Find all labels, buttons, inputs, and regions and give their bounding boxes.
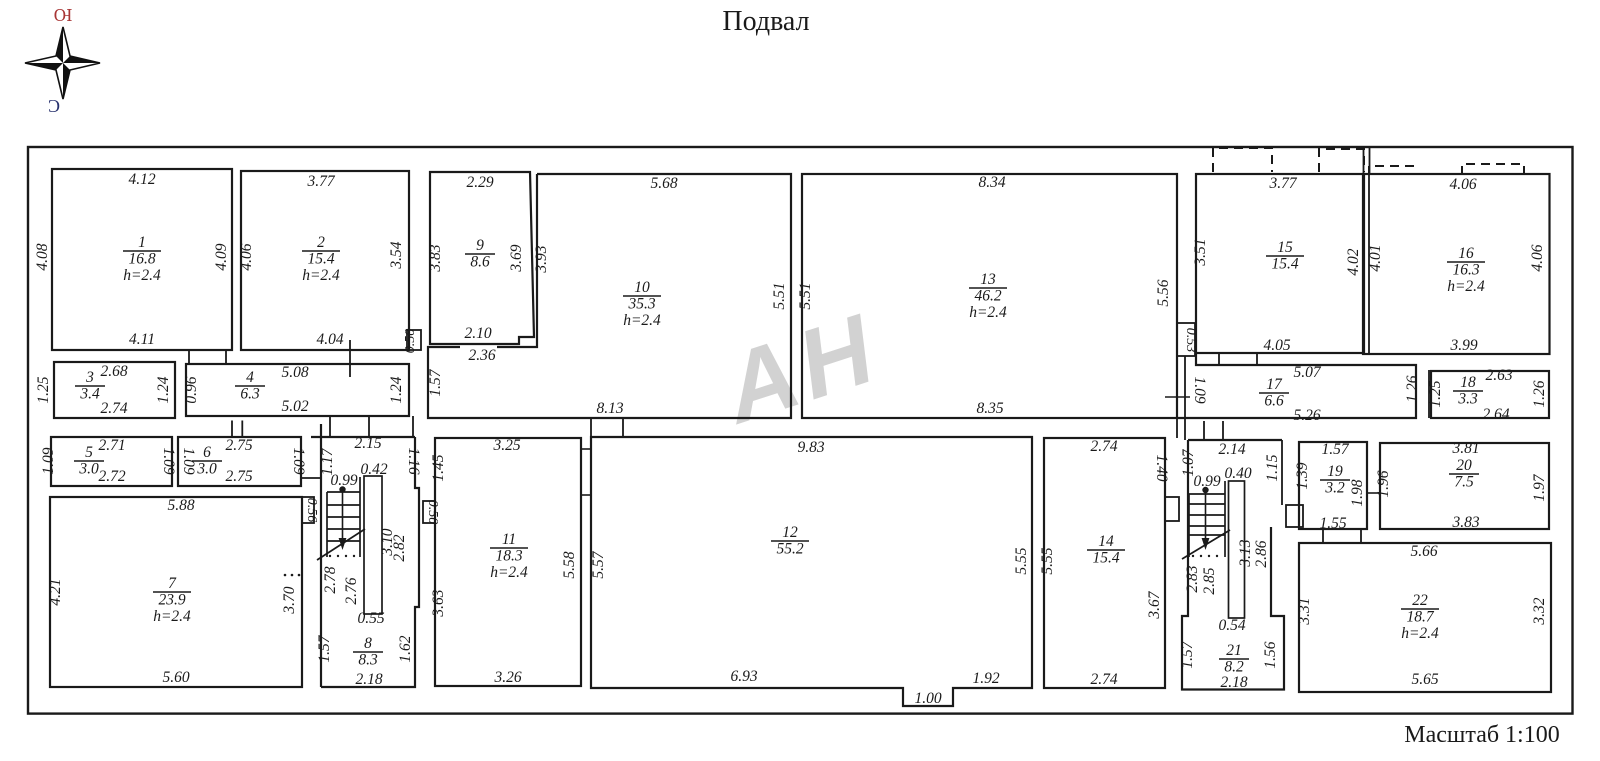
svg-text:2.83: 2.83 (1184, 565, 1201, 592)
svg-text:3.70: 3.70 (281, 586, 298, 614)
svg-text:3.77: 3.77 (306, 173, 335, 190)
svg-text:12: 12 (782, 524, 798, 541)
svg-text:16.8: 16.8 (128, 251, 155, 268)
svg-text:3.26: 3.26 (493, 669, 521, 686)
svg-text:1.16: 1.16 (405, 447, 422, 474)
svg-text:3.77: 3.77 (1268, 175, 1297, 192)
svg-text:2.86: 2.86 (1253, 540, 1270, 567)
svg-text:2.74: 2.74 (100, 400, 127, 417)
svg-text:2.10: 2.10 (464, 325, 491, 342)
svg-text:3.69: 3.69 (508, 244, 525, 272)
svg-text:1.55: 1.55 (1319, 515, 1346, 532)
svg-text:0.99: 0.99 (1193, 473, 1220, 490)
svg-text:1.57: 1.57 (1321, 441, 1349, 458)
svg-text:1.09: 1.09 (160, 447, 177, 474)
svg-text:55.2: 55.2 (776, 541, 803, 558)
svg-text:5.65: 5.65 (1411, 671, 1438, 688)
svg-text:2.71: 2.71 (98, 437, 125, 454)
svg-text:4.01: 4.01 (1367, 244, 1384, 271)
svg-text:18: 18 (1460, 374, 1476, 391)
svg-text:3.83: 3.83 (427, 244, 444, 272)
svg-text:5.66: 5.66 (1410, 543, 1437, 560)
svg-text:5: 5 (85, 444, 93, 461)
svg-text:4.06: 4.06 (1449, 176, 1476, 193)
svg-text:4.11: 4.11 (129, 331, 155, 348)
svg-text:5.60: 5.60 (162, 669, 189, 686)
svg-text:1.57: 1.57 (1179, 640, 1196, 668)
svg-text:2.29: 2.29 (466, 174, 493, 191)
svg-text:8.6: 8.6 (470, 254, 490, 271)
svg-text:10: 10 (634, 279, 650, 296)
svg-text:4.02: 4.02 (1345, 248, 1362, 275)
svg-text:35.3: 35.3 (627, 296, 655, 313)
svg-text:8.13: 8.13 (596, 400, 623, 417)
svg-text:9: 9 (476, 237, 484, 254)
svg-text:8.3: 8.3 (358, 652, 378, 669)
svg-text:3.2: 3.2 (1324, 480, 1345, 497)
svg-text:h=2.4: h=2.4 (1401, 625, 1439, 642)
svg-text:3.83: 3.83 (1451, 514, 1479, 531)
svg-text:15: 15 (1277, 239, 1293, 256)
svg-text:1.57: 1.57 (427, 368, 444, 396)
svg-text:6.6: 6.6 (1264, 393, 1284, 410)
svg-text:14: 14 (1098, 533, 1114, 550)
svg-text:3.32: 3.32 (1531, 597, 1548, 625)
svg-text:0.42: 0.42 (360, 461, 387, 478)
svg-text:18.7: 18.7 (1406, 609, 1434, 626)
svg-text:16: 16 (1458, 245, 1474, 262)
svg-text:18.3: 18.3 (495, 548, 522, 565)
svg-text:2: 2 (317, 234, 325, 251)
svg-text:1.24: 1.24 (388, 376, 405, 403)
svg-text:4.12: 4.12 (128, 171, 155, 188)
svg-text:2.76: 2.76 (343, 577, 360, 604)
svg-text:2.63: 2.63 (1485, 367, 1512, 384)
svg-text:h=2.4: h=2.4 (969, 304, 1007, 321)
svg-text:3.0: 3.0 (78, 461, 99, 478)
svg-text:5.08: 5.08 (281, 364, 308, 381)
svg-text:8.35: 8.35 (976, 400, 1003, 417)
svg-text:0.56: 0.56 (304, 498, 319, 523)
svg-text:5.02: 5.02 (281, 398, 308, 415)
svg-text:7.5: 7.5 (1454, 474, 1474, 491)
svg-text:8.2: 8.2 (1224, 659, 1244, 676)
svg-text:6.3: 6.3 (240, 386, 260, 403)
svg-text:1.97: 1.97 (1531, 473, 1548, 501)
svg-text:h=2.4: h=2.4 (302, 267, 340, 284)
svg-text:6: 6 (203, 444, 211, 461)
svg-text:h=2.4: h=2.4 (1447, 278, 1485, 295)
svg-text:1.39: 1.39 (1294, 462, 1311, 489)
svg-text:5.58: 5.58 (561, 551, 578, 578)
svg-text:15.4: 15.4 (307, 251, 334, 268)
svg-text:0.96: 0.96 (183, 376, 200, 403)
svg-text:9.83: 9.83 (797, 439, 824, 456)
svg-text:1.25: 1.25 (35, 376, 52, 403)
svg-text:2.18: 2.18 (1220, 674, 1247, 691)
svg-text:1.56: 1.56 (1262, 641, 1279, 668)
svg-text:1.96: 1.96 (1375, 470, 1392, 497)
svg-text:13: 13 (980, 271, 996, 288)
svg-text:1: 1 (138, 234, 146, 251)
svg-text:1.26: 1.26 (1404, 375, 1421, 402)
svg-text:46.2: 46.2 (974, 288, 1001, 305)
svg-text:0.54: 0.54 (1218, 617, 1245, 634)
svg-text:2.72: 2.72 (98, 468, 125, 485)
svg-text:2.64: 2.64 (1482, 406, 1509, 423)
svg-text:4.05: 4.05 (1263, 337, 1290, 354)
svg-text:3.25: 3.25 (492, 437, 520, 454)
svg-text:5.56: 5.56 (1155, 279, 1172, 306)
svg-text:19: 19 (1327, 463, 1343, 480)
svg-text:4.21: 4.21 (47, 578, 64, 605)
svg-text:5.55: 5.55 (1039, 547, 1056, 574)
svg-text:4.09: 4.09 (213, 243, 230, 270)
svg-text:1.57: 1.57 (316, 634, 333, 662)
svg-text:h=2.4: h=2.4 (153, 608, 191, 625)
svg-text:5.26: 5.26 (1293, 407, 1320, 424)
svg-text:23.9: 23.9 (158, 592, 185, 609)
svg-text:3.99: 3.99 (1449, 337, 1477, 354)
svg-text:3.0: 3.0 (196, 461, 217, 478)
svg-text:1.09: 1.09 (40, 447, 57, 474)
svg-text:2.74: 2.74 (1090, 671, 1117, 688)
svg-text:4.06: 4.06 (1529, 244, 1546, 271)
svg-text:8: 8 (364, 635, 372, 652)
svg-text:5.57: 5.57 (590, 550, 607, 578)
svg-text:21: 21 (1226, 642, 1242, 659)
svg-text:2.74: 2.74 (1090, 438, 1117, 455)
svg-text:5.51: 5.51 (797, 282, 814, 309)
svg-text:2.75: 2.75 (225, 468, 252, 485)
svg-text:1.15: 1.15 (1264, 454, 1281, 481)
svg-text:2.82: 2.82 (391, 534, 408, 561)
svg-text:2.75: 2.75 (225, 437, 252, 454)
svg-text:3.93: 3.93 (533, 245, 550, 273)
svg-text:3.51: 3.51 (1192, 238, 1209, 266)
svg-text:22: 22 (1412, 592, 1428, 609)
svg-text:3.3: 3.3 (1457, 391, 1478, 408)
svg-text:2.18: 2.18 (355, 671, 382, 688)
svg-text:4: 4 (246, 369, 254, 386)
svg-text:3.67: 3.67 (1146, 590, 1163, 619)
svg-text:16.3: 16.3 (1452, 262, 1479, 279)
svg-text:2.85: 2.85 (1201, 567, 1218, 594)
svg-text:0.50: 0.50 (403, 329, 418, 354)
svg-text:20: 20 (1456, 457, 1472, 474)
svg-text:1.24: 1.24 (155, 376, 172, 403)
svg-text:1.00: 1.00 (914, 690, 941, 707)
svg-text:2.15: 2.15 (354, 435, 381, 452)
svg-text:2.68: 2.68 (100, 363, 127, 380)
svg-text:2.78: 2.78 (322, 566, 339, 593)
svg-text:3.81: 3.81 (1451, 440, 1479, 457)
svg-text:Подвал: Подвал (722, 6, 809, 37)
svg-text:h=2.4: h=2.4 (490, 564, 528, 581)
svg-text:h=2.4: h=2.4 (623, 312, 661, 329)
svg-text:1.40: 1.40 (1153, 454, 1170, 481)
svg-text:0.40: 0.40 (1224, 465, 1251, 482)
svg-text:Ю: Ю (54, 5, 73, 25)
svg-text:8.34: 8.34 (978, 174, 1005, 191)
svg-text:2.14: 2.14 (1218, 441, 1245, 458)
svg-text:С: С (48, 96, 60, 116)
svg-text:4.06: 4.06 (238, 243, 255, 270)
svg-text:1.26: 1.26 (1531, 380, 1548, 407)
svg-text:1.45: 1.45 (430, 454, 447, 481)
svg-text:15.4: 15.4 (1271, 256, 1298, 273)
svg-text:11: 11 (502, 531, 516, 548)
svg-text:15.4: 15.4 (1092, 550, 1119, 567)
svg-text:4.08: 4.08 (34, 243, 51, 270)
svg-text:3.63: 3.63 (430, 589, 447, 617)
svg-text:1.25: 1.25 (1427, 380, 1444, 407)
svg-text:3.31: 3.31 (1296, 597, 1313, 625)
svg-text:h=2.4: h=2.4 (123, 267, 161, 284)
svg-text:3: 3 (85, 369, 94, 386)
svg-text:1.98: 1.98 (1349, 479, 1366, 506)
svg-text:1.09: 1.09 (290, 447, 307, 474)
svg-text:5.07: 5.07 (1293, 364, 1321, 381)
svg-text:1.62: 1.62 (397, 635, 414, 662)
svg-text:5.51: 5.51 (771, 282, 788, 309)
svg-text:2.36: 2.36 (468, 347, 495, 364)
svg-text:5.68: 5.68 (650, 175, 677, 192)
svg-text:17: 17 (1266, 376, 1283, 393)
svg-text:0.99: 0.99 (330, 472, 357, 489)
svg-text:0.55: 0.55 (357, 610, 384, 627)
svg-text:6.93: 6.93 (730, 668, 757, 685)
svg-text:3.54: 3.54 (388, 241, 405, 269)
svg-text:4.04: 4.04 (316, 331, 343, 348)
svg-text:0.50: 0.50 (425, 500, 440, 525)
svg-text:1.09: 1.09 (180, 447, 197, 474)
svg-text:1.09: 1.09 (1191, 376, 1208, 403)
svg-text:5.88: 5.88 (167, 497, 194, 514)
svg-text:7: 7 (168, 575, 177, 592)
svg-text:3.13: 3.13 (1237, 539, 1254, 567)
svg-text:3.4: 3.4 (79, 386, 100, 403)
svg-text:1.92: 1.92 (972, 670, 999, 687)
svg-text:5.55: 5.55 (1013, 547, 1030, 574)
svg-text:Масштаб 1:100: Масштаб 1:100 (1404, 722, 1559, 748)
